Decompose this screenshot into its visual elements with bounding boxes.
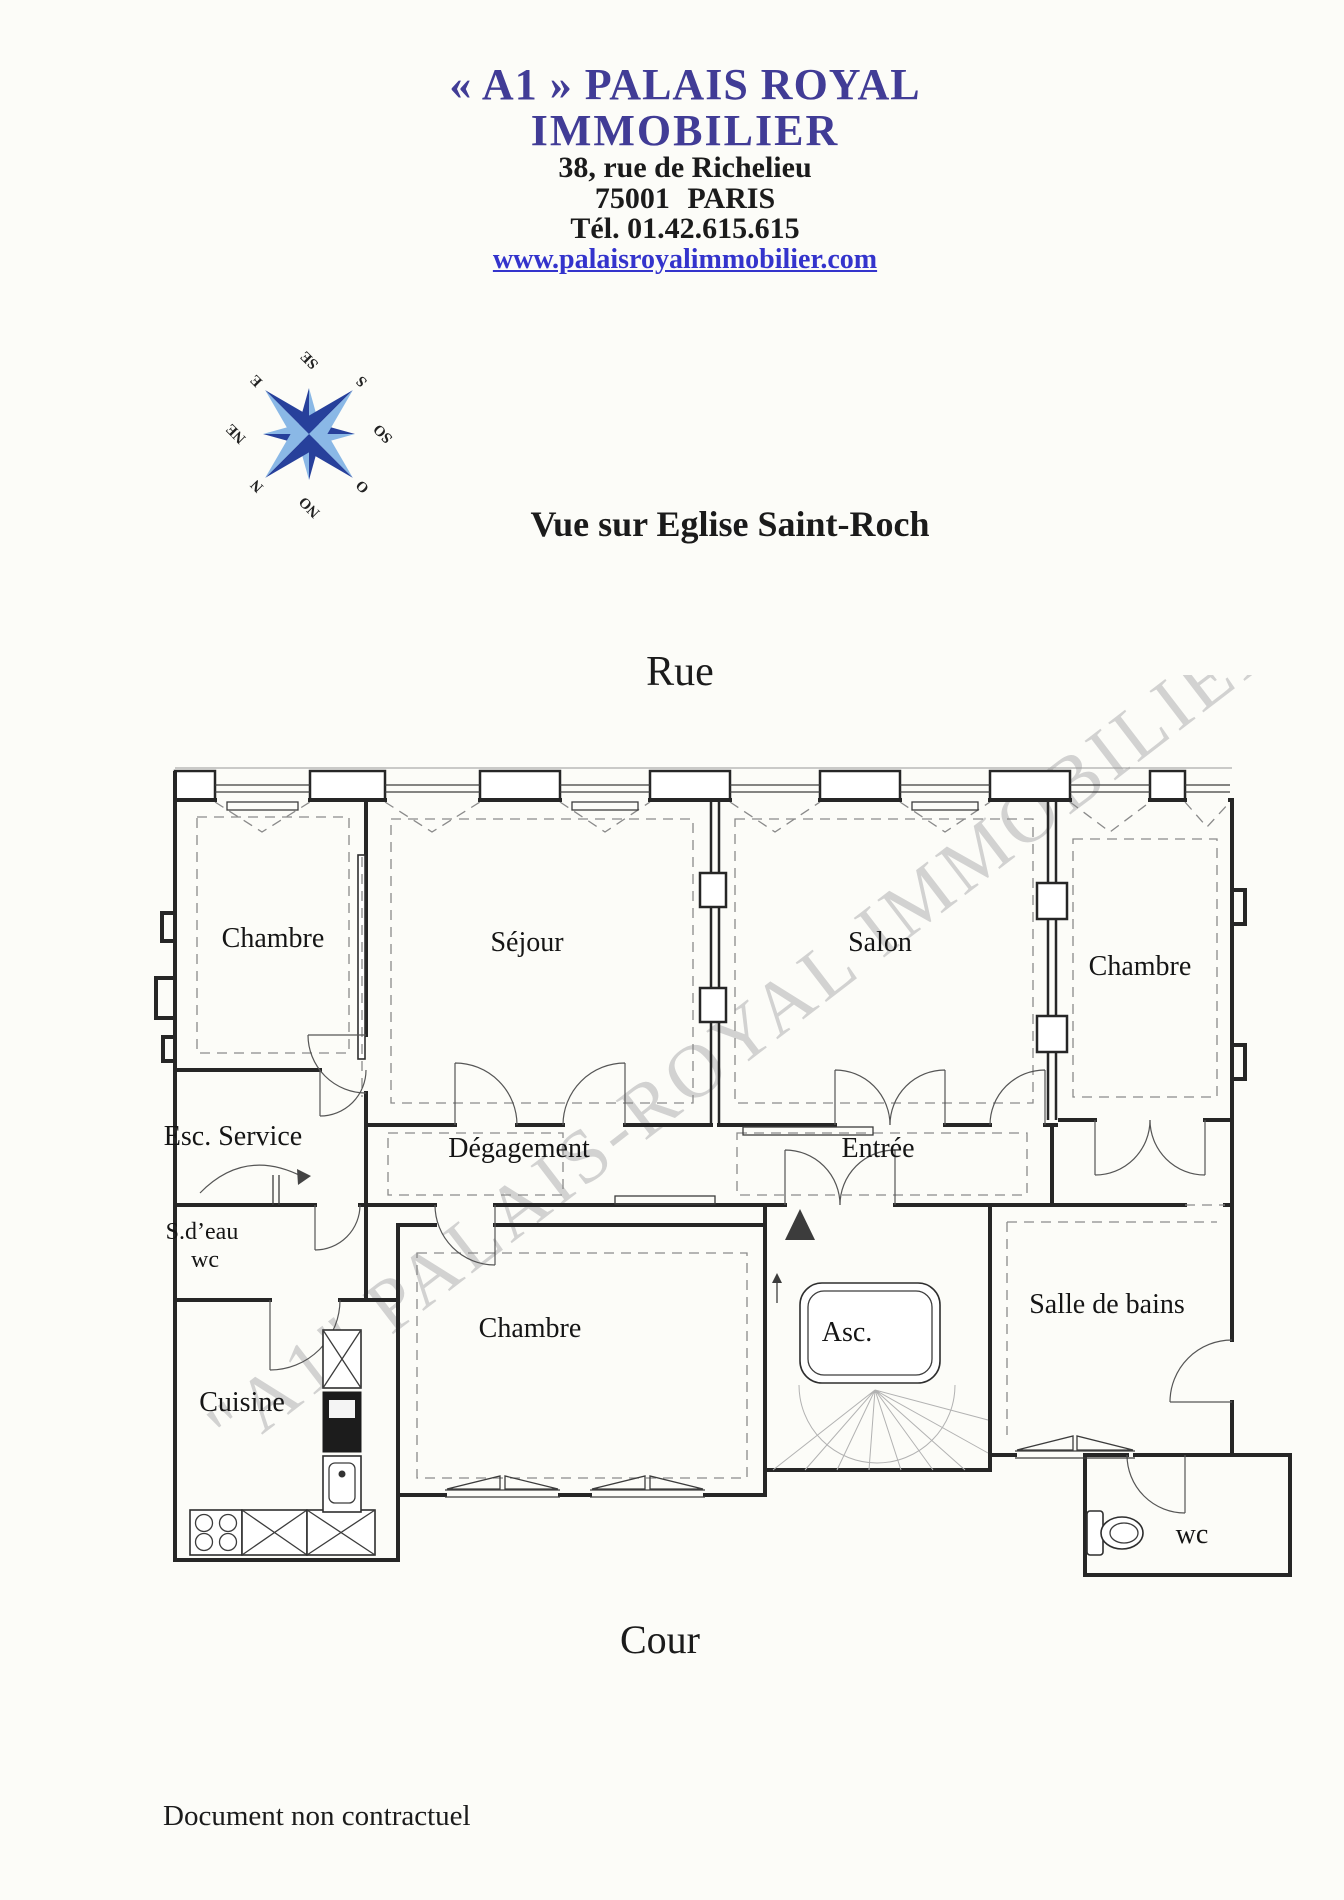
stair-arrow-icon xyxy=(297,1169,311,1185)
walls xyxy=(156,773,1290,1575)
room-label-wc: wc xyxy=(1176,1519,1209,1550)
room-label-ascenseur: Asc. xyxy=(822,1317,873,1348)
room-label-esc-service: Esc. Service xyxy=(164,1121,302,1152)
view-title: Vue sur Eglise Saint-Roch xyxy=(430,503,1030,545)
compass-label-n: N xyxy=(248,476,267,495)
room-label-salle-de-bains: Salle de bains xyxy=(1029,1289,1185,1320)
room-label-chambre-s: Chambre xyxy=(479,1313,582,1344)
main-stair xyxy=(772,1209,988,1470)
room-label-degagement: Dégagement xyxy=(448,1133,590,1164)
compass-label-s: S xyxy=(353,372,370,389)
compass-label-e: E xyxy=(247,371,265,389)
room-label-sdeau-wc: wc xyxy=(191,1247,219,1273)
agency-name-line2: IMMOBILIER xyxy=(345,108,1025,154)
disclaimer-text: Document non contractuel xyxy=(163,1800,471,1833)
compass-label-se: SE xyxy=(298,349,322,372)
room-label-cuisine: Cuisine xyxy=(199,1387,285,1418)
room-label-sejour: Séjour xyxy=(490,927,564,958)
service-stair xyxy=(200,1165,311,1205)
compass-label-no: NO xyxy=(296,493,323,519)
scanned-floorplan-page: « A1 » PALAIS ROYAL IMMOBILIER 38, rue d… xyxy=(0,0,1344,1900)
compass-label-ne: NE xyxy=(224,420,249,446)
room-label-entree: Entrée xyxy=(841,1133,914,1164)
agency-city: 75001 PARIS xyxy=(345,183,1025,215)
room-label-chambre-nw: Chambre xyxy=(222,923,325,954)
courtyard-windows xyxy=(445,1436,1135,1497)
toilet-icon xyxy=(1087,1511,1143,1555)
floor-plan: "A1" PALAIS-ROYAL IMMOBILIER xyxy=(145,675,1305,1585)
room-label-salon: Salon xyxy=(848,927,912,958)
agency-street: 38, rue de Richelieu xyxy=(345,152,1025,184)
entrance-triangle-icon xyxy=(785,1209,815,1240)
room-label-chambre-ne: Chambre xyxy=(1089,951,1192,982)
agency-website-link[interactable]: www.palaisroyalimmobilier.com xyxy=(345,245,1025,274)
compass-star xyxy=(224,349,394,519)
agency-name-line1: « A1 » PALAIS ROYAL xyxy=(345,62,1025,108)
compass-label-o: O xyxy=(353,477,373,497)
stair-direction-arrow-icon xyxy=(772,1273,782,1283)
room-label-sdeau: S.d’eau xyxy=(166,1219,239,1245)
compass-label-so: SO xyxy=(371,421,394,446)
compass-rose: N NE E SE S SO O NO xyxy=(224,349,394,519)
courtyard-side-label: Cour xyxy=(580,1616,740,1663)
agency-phone: Tél. 01.42.615.615 xyxy=(345,213,1025,245)
